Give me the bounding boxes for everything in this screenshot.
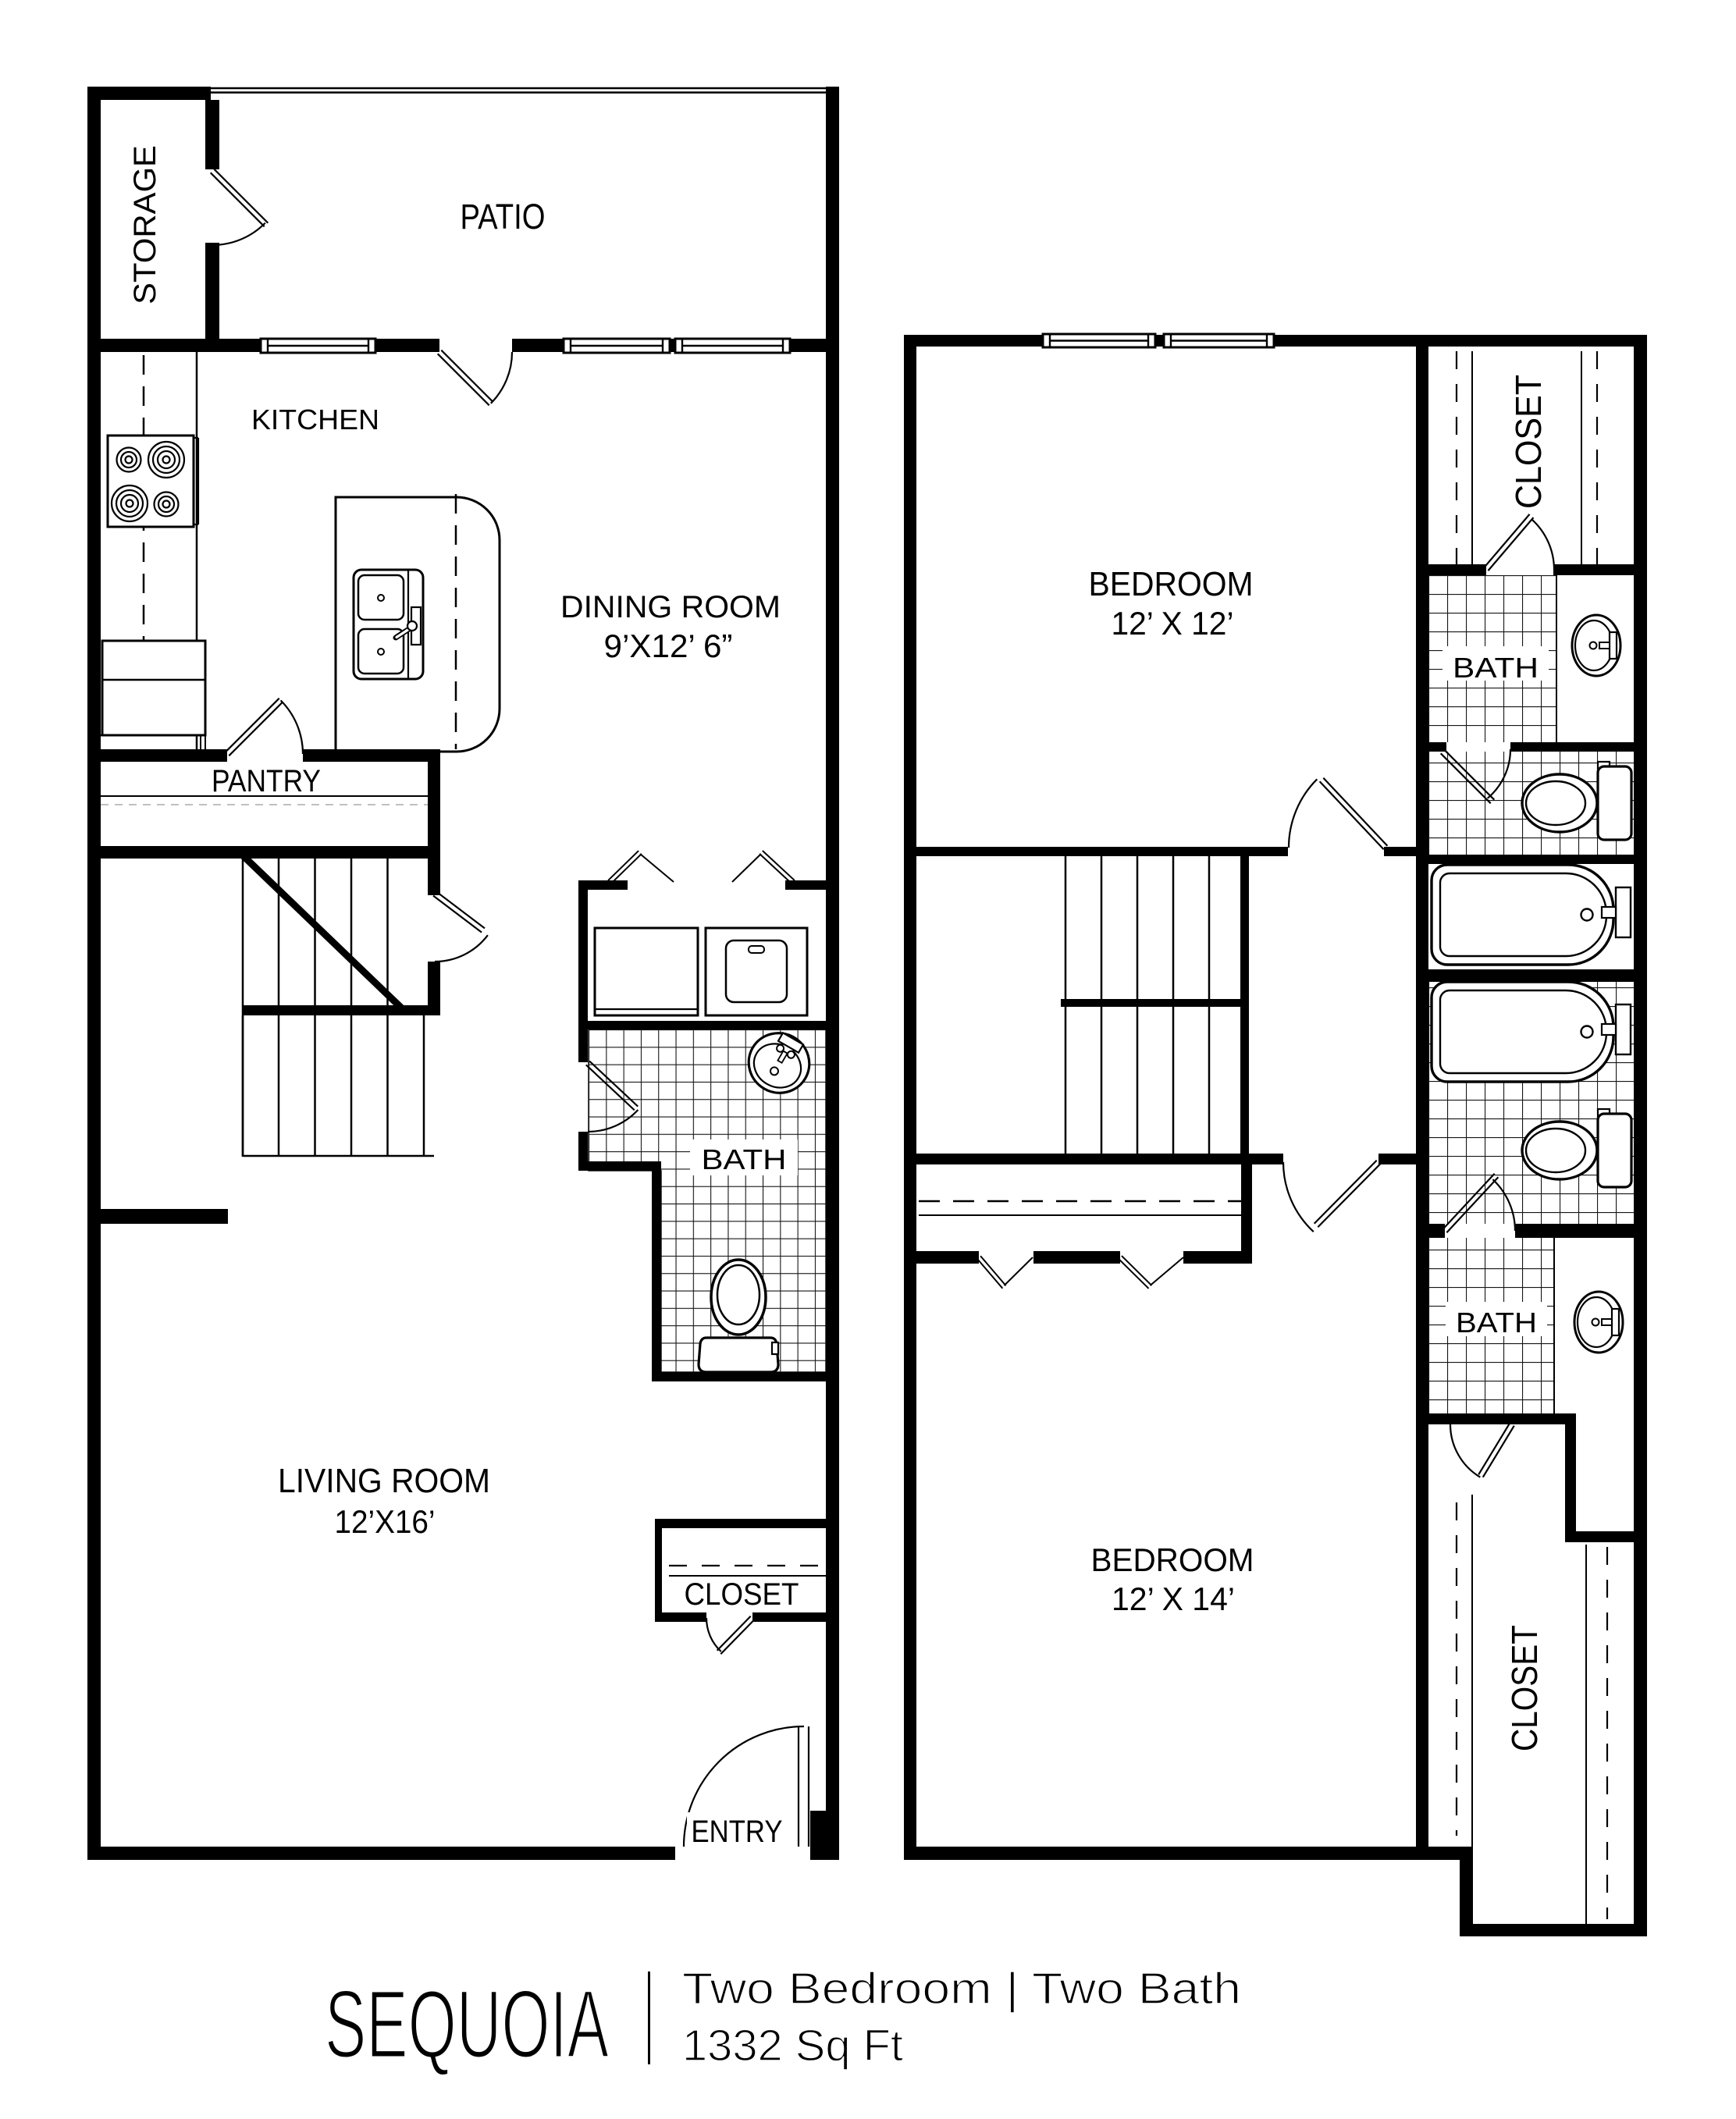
svg-text:BEDROOM: BEDROOM	[1089, 565, 1254, 603]
svg-text:KITCHEN: KITCHEN	[251, 404, 379, 436]
svg-text:BATH: BATH	[702, 1143, 787, 1175]
svg-text:12’X16’: 12’X16’	[335, 1503, 436, 1540]
svg-text:1332 Sq Ft: 1332 Sq Ft	[682, 2021, 903, 2071]
svg-text:CLOSET: CLOSET	[1504, 1625, 1545, 1751]
svg-text:9’X12’ 6”: 9’X12’ 6”	[604, 628, 733, 664]
svg-text:SEQUOIA: SEQUOIA	[325, 1971, 609, 2078]
svg-text:CLOSET: CLOSET	[1508, 375, 1549, 509]
svg-text:ENTRY: ENTRY	[692, 1815, 783, 1849]
svg-text:CLOSET: CLOSET	[685, 1577, 799, 1612]
svg-text:Two Bedroom | Two Bath: Two Bedroom | Two Bath	[682, 1964, 1241, 2014]
svg-text:PATIO: PATIO	[461, 197, 546, 236]
svg-text:LIVING ROOM: LIVING ROOM	[278, 1462, 490, 1500]
svg-text:BATH: BATH	[1456, 1307, 1537, 1339]
svg-text:BEDROOM: BEDROOM	[1091, 1541, 1254, 1578]
svg-text:STORAGE: STORAGE	[128, 145, 162, 304]
svg-text:12’ X 12’: 12’ X 12’	[1112, 605, 1234, 642]
svg-text:PANTRY: PANTRY	[212, 764, 321, 798]
svg-text:12’ X 14’: 12’ X 14’	[1112, 1580, 1235, 1617]
svg-text:BATH: BATH	[1453, 652, 1539, 684]
svg-text:DINING ROOM: DINING ROOM	[560, 590, 781, 624]
